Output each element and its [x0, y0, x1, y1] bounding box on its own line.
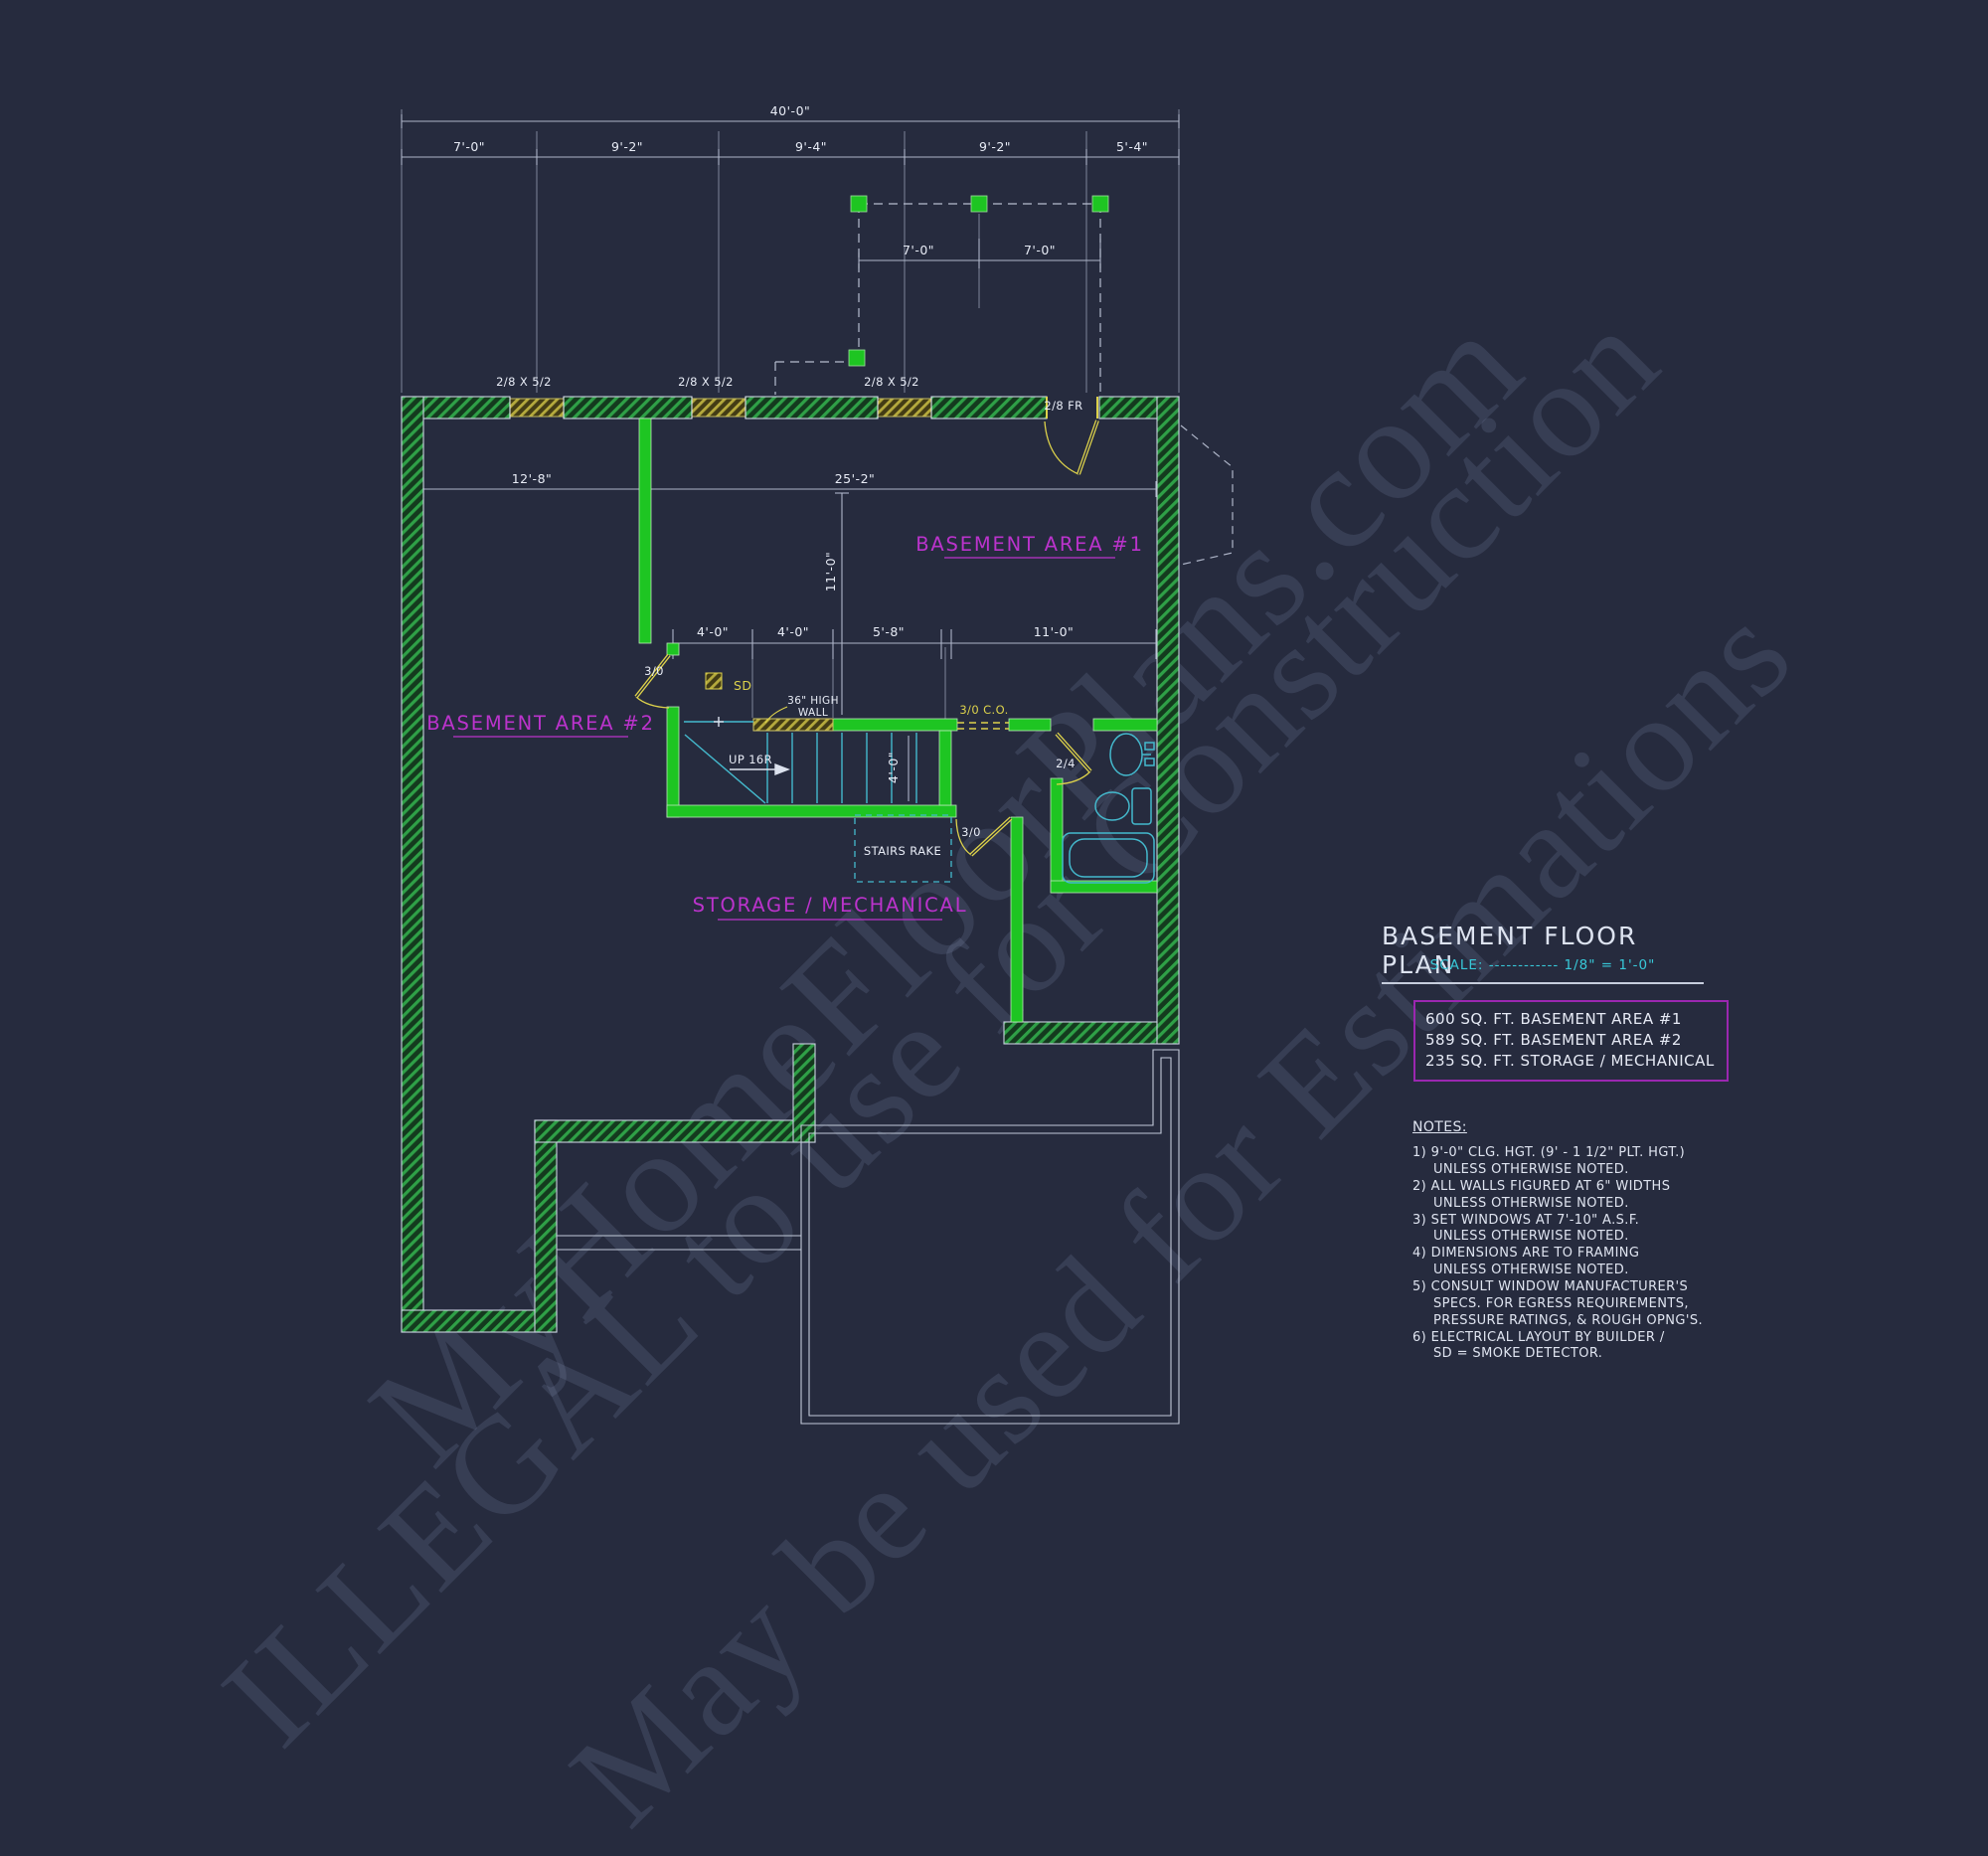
svg-text:4'-0": 4'-0": [886, 752, 901, 783]
svg-text:2/8 X 5/2: 2/8 X 5/2: [678, 375, 734, 389]
bath-door-label: 2/4: [1056, 757, 1076, 770]
area-line: 600 SQ. FT. BASEMENT AREA #1: [1425, 1009, 1715, 1030]
half-wall: [753, 719, 833, 731]
notes-title: NOTES:: [1412, 1119, 1703, 1136]
porch-dashed-outline: [775, 204, 1100, 395]
svg-text:12'-8": 12'-8": [512, 471, 553, 486]
svg-text:9'-2": 9'-2": [979, 139, 1011, 154]
svg-text:25'-2": 25'-2": [835, 471, 876, 486]
note-line: 6) ELECTRICAL LAYOUT BY BUILDER /: [1412, 1330, 1703, 1346]
unexcavated-outline: [557, 1050, 1179, 1424]
annotation-labels: 2/8 X 5/2 2/8 X 5/2 2/8 X 5/2 2/8 FR 3/0…: [496, 375, 1082, 858]
svg-text:4'-0": 4'-0": [697, 624, 729, 639]
note-line: SD = SMOKE DETECTOR.: [1433, 1346, 1703, 1362]
tub-inner: [1070, 839, 1147, 877]
half-wall-label-2: WALL: [798, 707, 828, 719]
note-line: 3) SET WINDOWS AT 7'-10" A.S.F.: [1412, 1213, 1703, 1229]
bay-dashed-outline: [1181, 425, 1233, 565]
svg-text:4'-0": 4'-0": [777, 624, 809, 639]
note-line: 1) 9'-0" CLG. HGT. (9' - 1 1/2" PLT. HGT…: [1412, 1145, 1703, 1161]
note-line: 5) CONSULT WINDOW MANUFACTURER'S: [1412, 1279, 1703, 1295]
svg-text:2/8 X 5/2: 2/8 X 5/2: [864, 375, 919, 389]
note-line: UNLESS OTHERWISE NOTED.: [1433, 1263, 1703, 1278]
svg-text:2/8 X 5/2: 2/8 X 5/2: [496, 375, 552, 389]
note-line: SPECS. FOR EGRESS REQUIREMENTS,: [1433, 1296, 1703, 1312]
svg-text:11'-0": 11'-0": [1034, 624, 1075, 639]
toilet-tank: [1132, 788, 1151, 824]
cased-opening-label: 3/0 C.O.: [959, 703, 1008, 717]
scale-prefix: SCALE:: [1430, 957, 1484, 973]
note-line: UNLESS OTHERWISE NOTED.: [1433, 1229, 1703, 1245]
scale-note: SCALE: ------------ 1/8" = 1'-0": [1382, 957, 1704, 973]
note-line: UNLESS OTHERWISE NOTED.: [1433, 1196, 1703, 1212]
note-line: 4) DIMENSIONS ARE TO FRAMING: [1412, 1246, 1703, 1262]
dimension-labels: 40'-0" 7'-0" 9'-2" 9'-4" 9'-2" 5'-4" 7'-…: [453, 103, 1148, 783]
room-label-storage: STORAGE / MECHANICAL: [693, 894, 968, 917]
sd-label: SD: [734, 678, 751, 693]
dim-overall: 40'-0": [770, 103, 811, 118]
svg-text:5'-8": 5'-8": [873, 624, 905, 639]
drawing-title: BASEMENT FLOOR PLAN: [1382, 922, 1704, 984]
note-line: 2) ALL WALLS FIGURED AT 6" WIDTHS: [1412, 1179, 1703, 1195]
note-line: PRESSURE RATINGS, & ROUGH OPNG'S.: [1433, 1313, 1703, 1329]
svg-text:7'-0": 7'-0": [453, 139, 485, 154]
interior-walls: [639, 419, 1157, 1022]
svg-text:9'-4": 9'-4": [795, 139, 827, 154]
ba2-door-label: 3/0: [644, 664, 664, 678]
note-line: UNLESS OTHERWISE NOTED.: [1433, 1162, 1703, 1178]
storage-door-label: 3/0: [961, 825, 981, 839]
scale-value: 1/8" = 1'-0": [1565, 957, 1656, 973]
svg-text:11'-0": 11'-0": [823, 552, 838, 592]
cad-viewport: { "colors": { "background": "#262b3e", "…: [0, 0, 1988, 1491]
svg-text:7'-0": 7'-0": [903, 243, 934, 257]
toilet-bowl: [1095, 792, 1129, 820]
svg-text:9'-2": 9'-2": [611, 139, 643, 154]
stairs: [684, 722, 916, 803]
area-line: 589 SQ. FT. BASEMENT AREA #2: [1425, 1030, 1715, 1051]
sink: [1110, 734, 1142, 775]
square-footage-box: 600 SQ. FT. BASEMENT AREA #1 589 SQ. FT.…: [1413, 1000, 1729, 1082]
smoke-detector-icon: [706, 673, 722, 689]
room-label-ba1: BASEMENT AREA #1: [915, 533, 1144, 556]
svg-text:7'-0": 7'-0": [1024, 243, 1056, 257]
area-line: 235 SQ. FT. STORAGE / MECHANICAL: [1425, 1051, 1715, 1072]
svg-text:5'-4": 5'-4": [1116, 139, 1148, 154]
notes-block: NOTES: 1) 9'-0" CLG. HGT. (9' - 1 1/2" P…: [1412, 1119, 1703, 1363]
scale-dashes: ------------: [1489, 957, 1559, 973]
half-wall-label-1: 36" HIGH: [787, 695, 839, 707]
up-label: UP 16R: [729, 753, 772, 766]
front-door-label: 2/8 FR: [1044, 399, 1082, 413]
tub: [1063, 833, 1154, 883]
room-label-ba2: BASEMENT AREA #2: [426, 712, 655, 735]
stairs-rake-label: STAIRS RAKE: [864, 844, 941, 858]
